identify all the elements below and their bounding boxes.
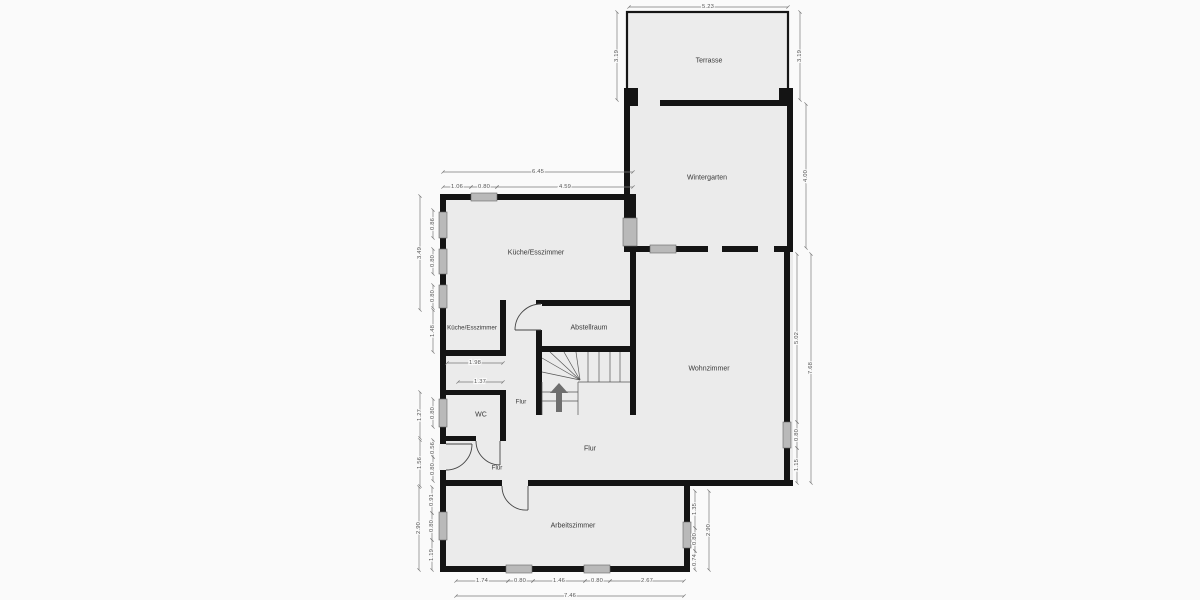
wall (440, 350, 506, 356)
wall (660, 100, 793, 106)
wall (787, 100, 793, 252)
svg-text:3.19: 3.19 (614, 50, 620, 62)
room-label-kueche-klein: Küche/Esszimmer (447, 325, 497, 332)
svg-text:0.86: 0.86 (430, 218, 436, 230)
dim-arb-rechts-seg1: 1.35 (692, 491, 698, 528)
window (471, 193, 497, 201)
dim-wohn-rechts-fenster: 0.80 (794, 422, 800, 448)
window (650, 245, 676, 253)
dim-arb-rechts-fenster: 0.80 (692, 528, 698, 551)
svg-text:3.19: 3.19 (797, 50, 803, 62)
room-label-flur-haupt: Flur (584, 446, 597, 453)
door-opening (708, 246, 722, 252)
window (506, 565, 532, 573)
dim-arb-links: 2.90 (416, 487, 422, 570)
dim-fenster-links2: 0.80 (430, 249, 436, 274)
wall (500, 300, 506, 356)
svg-text:1.46: 1.46 (553, 578, 565, 584)
svg-text:0.80: 0.80 (429, 520, 435, 532)
window (439, 285, 447, 308)
dim-wintergarten-rechts: 4.00 (803, 104, 809, 248)
dim-wc-fenster: 0.80 (430, 399, 436, 427)
svg-text:0.56: 0.56 (430, 442, 436, 454)
window (439, 212, 447, 238)
svg-text:0.80: 0.80 (430, 255, 436, 267)
svg-text:1.74: 1.74 (476, 578, 489, 584)
dim-arb-links-seg1: 0.91 (429, 487, 435, 513)
door-opening (536, 304, 542, 330)
dim-terrasse-breite: 5.23 (629, 4, 788, 10)
svg-text:1.06: 1.06 (451, 184, 463, 190)
svg-text:6.45: 6.45 (532, 169, 544, 175)
dim-arb-unten-seg2: 1.46 (533, 578, 585, 584)
svg-text:0.80: 0.80 (430, 407, 436, 419)
svg-text:4.59: 4.59 (559, 184, 571, 190)
svg-text:1.37: 1.37 (474, 379, 486, 385)
door-opening (502, 480, 528, 486)
svg-text:2.67: 2.67 (641, 578, 653, 584)
svg-text:5.23: 5.23 (702, 4, 714, 10)
svg-text:0.80: 0.80 (514, 578, 526, 584)
window (623, 218, 637, 246)
dim-kueche-fenster-oben: 0.80 (471, 184, 497, 190)
room-label-abstellraum: Abstellraum (571, 325, 608, 332)
window (783, 422, 791, 448)
dim-terrasse-links: 3.19 (614, 12, 620, 100)
wall (440, 194, 636, 200)
room-label-terrasse: Terrasse (696, 58, 723, 65)
svg-text:0.80: 0.80 (591, 578, 603, 584)
dim-kueche-seg2: 4.59 (497, 184, 633, 190)
svg-text:0.80: 0.80 (692, 533, 698, 545)
floorplan-svg: Terrasse Wintergarten Küche/Esszimmer Kü… (0, 0, 1200, 600)
dim-eingang-tuer: 0.80 (430, 457, 436, 481)
svg-text:1.15: 1.15 (794, 459, 800, 471)
window (439, 399, 447, 427)
dim-arb-unten-fenster2: 0.80 (585, 578, 610, 584)
wall (536, 300, 636, 306)
door-opening (439, 444, 447, 470)
dim-wohn-rechts: 7.68 (808, 254, 814, 483)
window (683, 522, 691, 548)
dim-fenster-links3: 0.80 (430, 285, 436, 308)
door-opening (758, 246, 774, 252)
room-label-wintergarten: Wintergarten (687, 175, 727, 182)
dim-arb-unten-seg3: 2.67 (610, 578, 684, 584)
svg-text:2.90: 2.90 (416, 522, 422, 534)
svg-text:2.90: 2.90 (706, 524, 712, 536)
svg-text:0.74: 0.74 (692, 553, 698, 566)
dim-fenster-links1: 0.86 (430, 210, 436, 238)
wall (440, 480, 793, 486)
svg-text:1.19: 1.19 (429, 549, 435, 561)
window (584, 565, 610, 573)
dim-arb-rechts: 2.90 (706, 491, 712, 570)
svg-text:1.27: 1.27 (417, 409, 423, 421)
dim-arb-links-seg2: 1.19 (429, 540, 435, 570)
dim-kueche-links: 3.49 (417, 196, 423, 310)
dim-arb-rechts-seg2: 0.74 (692, 551, 698, 570)
wall (536, 346, 636, 352)
dim-wc-links: 1.27 (417, 392, 423, 438)
dim-terrasse-rechts: 3.19 (797, 12, 803, 100)
dim-eingang-seg1: 0.56 (430, 440, 436, 457)
window (439, 512, 447, 540)
svg-text:1.56: 1.56 (417, 457, 423, 469)
dim-wohn-rechts-seg1: 5.02 (794, 254, 800, 422)
wall (500, 390, 506, 441)
svg-text:0.80: 0.80 (794, 429, 800, 441)
floor-areas (440, 12, 793, 572)
svg-text:1.98: 1.98 (469, 360, 481, 366)
dim-arb-unten-fenster1: 0.80 (508, 578, 533, 584)
dim-arb-unten-seg1: 1.74 (456, 578, 508, 584)
room-label-arbeitszimmer: Arbeitszimmer (551, 523, 596, 530)
dim-kueche-unten: 1.48 (430, 310, 436, 352)
svg-text:0.80: 0.80 (430, 463, 436, 475)
wall (440, 566, 690, 572)
dim-arb-links-fenster: 0.80 (429, 513, 435, 540)
dim-arb-unten: 7.46 (456, 593, 684, 599)
svg-text:7.46: 7.46 (564, 593, 576, 599)
room-label-flur-eingang: Flur (492, 465, 503, 472)
room-label-wohnzimmer: Wohnzimmer (688, 366, 730, 373)
dim-kueche-seg1: 1.06 (443, 184, 471, 190)
door-opening (476, 436, 500, 441)
dim-kueche-breite: 6.45 (443, 169, 633, 175)
svg-text:0.80: 0.80 (478, 184, 490, 190)
room-label-wc: WC (475, 412, 487, 419)
svg-text:5.02: 5.02 (794, 332, 800, 344)
svg-text:4.00: 4.00 (803, 170, 809, 182)
wall (440, 390, 506, 395)
dim-wohn-rechts-seg2: 1.15 (794, 448, 800, 483)
room-label-flur-korridor: Flur (516, 399, 527, 406)
svg-text:3.49: 3.49 (417, 247, 423, 259)
room-label-kueche: Küche/Esszimmer (508, 250, 565, 257)
svg-text:1.48: 1.48 (430, 325, 436, 337)
svg-text:0.91: 0.91 (429, 494, 435, 506)
svg-text:7.68: 7.68 (808, 362, 814, 374)
svg-text:0.80: 0.80 (430, 290, 436, 302)
window (439, 249, 447, 274)
svg-text:1.35: 1.35 (692, 503, 698, 515)
wall (784, 246, 790, 486)
dim-eingang-links: 1.56 (417, 440, 423, 486)
